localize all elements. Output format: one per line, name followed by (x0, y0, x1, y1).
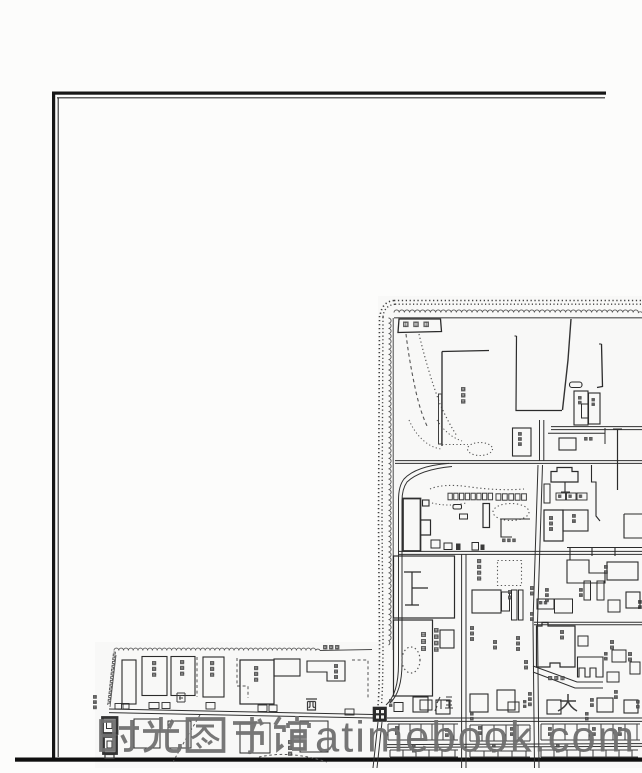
svg-text:atimebook.com: atimebook.com (315, 714, 636, 762)
